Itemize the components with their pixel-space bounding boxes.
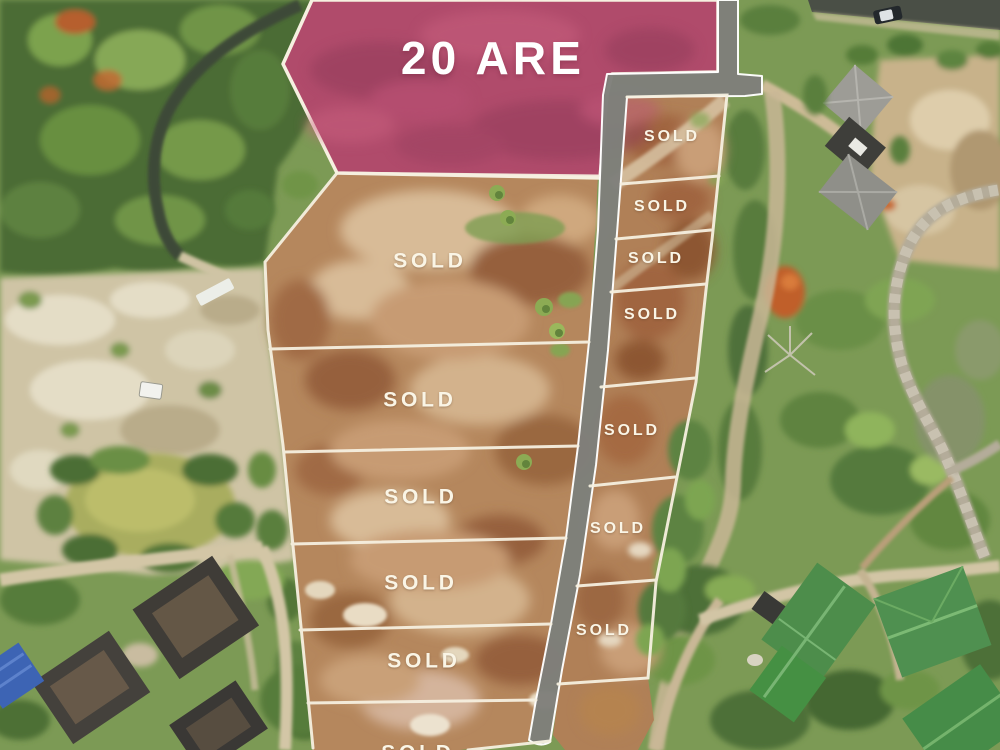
debris (747, 654, 763, 666)
aerial-photo-scene (0, 0, 1000, 750)
aerial-land-plot-photo: 20 ARE SOLDSOLDSOLDSOLDSOLDSOLDSOLDSOLDS… (0, 0, 1000, 750)
white-shed (139, 382, 163, 400)
